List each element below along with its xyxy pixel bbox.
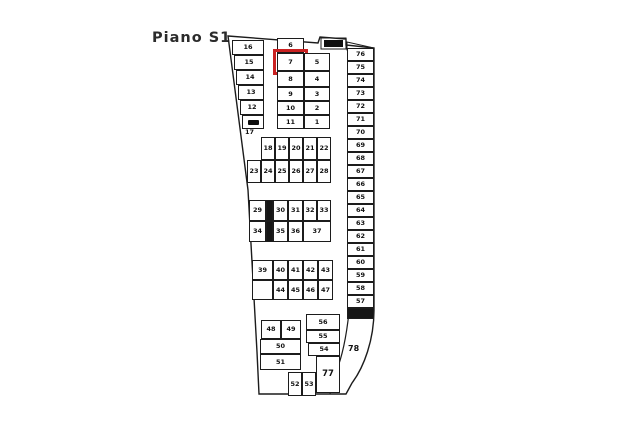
parking-cell-33: 33 (317, 200, 331, 221)
parking-cell-23: 23 (247, 160, 261, 183)
parking-cell-51: 51 (260, 354, 301, 370)
parking-cell-75: 75 (347, 61, 374, 74)
parking-cell-70: 70 (347, 126, 374, 139)
parking-cell-1: 1 (304, 115, 330, 129)
parking-cell-71: 71 (347, 113, 374, 126)
parking-cell-37: 37 (303, 221, 331, 242)
parking-cell-55: 55 (306, 330, 340, 343)
parking-cell-29: 29 (249, 200, 266, 221)
area-label-78: 78 (348, 344, 359, 353)
parking-cell-22: 22 (317, 137, 331, 160)
parking-cell-34: 34 (249, 221, 266, 242)
parking-cell-65: 65 (347, 191, 374, 204)
parking-cell-16: 16 (232, 40, 264, 55)
parking-cell-77: 77 (316, 356, 340, 393)
parking-cell-58: 58 (347, 282, 374, 295)
parking-cell-49: 49 (281, 320, 301, 339)
parking-cell-9: 9 (277, 87, 304, 101)
parking-cell-41: 41 (288, 260, 303, 280)
parking-cell-69: 69 (347, 139, 374, 152)
entrance-cell (321, 38, 346, 49)
parking-cell-32: 32 (303, 200, 317, 221)
parking-cell-35: 35 (273, 221, 288, 242)
parking-cell-2: 2 (304, 101, 330, 115)
parking-cell-52: 52 (288, 372, 302, 396)
parking-cell-5: 5 (304, 53, 330, 71)
parking-cell-74: 74 (347, 74, 374, 87)
parking-cell-31: 31 (288, 200, 303, 221)
parking-cell-76: 76 (347, 48, 374, 61)
parking-cell-21: 21 (303, 137, 317, 160)
parking-cell-36: 36 (288, 221, 303, 242)
parking-cell-68: 68 (347, 152, 374, 165)
parking-cell-72: 72 (347, 100, 374, 113)
parking-cell-26: 26 (289, 160, 303, 183)
parking-cell-40: 40 (273, 260, 288, 280)
parking-cell-53: 53 (302, 372, 316, 396)
parking-cell-28: 28 (317, 160, 331, 183)
blank-cell (252, 280, 273, 300)
parking-cell-46: 46 (303, 280, 318, 300)
area-label-17: 17 (245, 128, 254, 136)
parking-cell-24: 24 (261, 160, 275, 183)
parking-cell-27: 27 (303, 160, 317, 183)
parking-cell-42: 42 (303, 260, 318, 280)
parking-cell-73: 73 (347, 87, 374, 100)
parking-cell-64: 64 (347, 204, 374, 217)
parking-cell-3: 3 (304, 87, 330, 101)
parking-cell-20: 20 (289, 137, 303, 160)
parking-cell-56: 56 (306, 314, 340, 330)
parking-cell-4: 4 (304, 71, 330, 87)
blank-cell (242, 115, 264, 129)
parking-cell-61: 61 (347, 243, 374, 256)
parking-cell-8: 8 (277, 71, 304, 87)
plan-title: Piano S1 (152, 30, 231, 46)
parking-cell-25: 25 (275, 160, 289, 183)
parking-cell-44: 44 (273, 280, 288, 300)
parking-cell-14: 14 (236, 70, 264, 85)
parking-cell-60: 60 (347, 256, 374, 269)
parking-cell-50: 50 (260, 339, 301, 354)
parking-cell-11: 11 (277, 115, 304, 129)
parking-cell-57: 57 (347, 295, 374, 308)
parking-cell-30: 30 (273, 200, 288, 221)
parking-cell-45: 45 (288, 280, 303, 300)
shaft-cell (266, 200, 273, 221)
parking-cell-47: 47 (318, 280, 333, 300)
parking-cell-12: 12 (240, 100, 264, 115)
parking-cell-15: 15 (234, 55, 264, 70)
parking-cell-43: 43 (318, 260, 333, 280)
parking-cell-67: 67 (347, 165, 374, 178)
shaft-cell (347, 308, 374, 319)
parking-cell-39: 39 (252, 260, 273, 280)
parking-cell-59: 59 (347, 269, 374, 282)
parking-cell-62: 62 (347, 230, 374, 243)
parking-cell-66: 66 (347, 178, 374, 191)
parking-cell-13: 13 (238, 85, 264, 100)
parking-cell-18: 18 (261, 137, 275, 160)
parking-cell-54: 54 (308, 343, 340, 356)
parking-cell-19: 19 (275, 137, 289, 160)
floor-plan-canvas: Piano S1 1615141312678910115432118192021… (0, 0, 640, 427)
parking-cell-48: 48 (261, 320, 281, 339)
shaft-cell (266, 221, 273, 242)
parking-cell-63: 63 (347, 217, 374, 230)
bold-mark (248, 120, 259, 125)
parking-cell-10: 10 (277, 101, 304, 115)
entrance-marker (324, 40, 343, 47)
